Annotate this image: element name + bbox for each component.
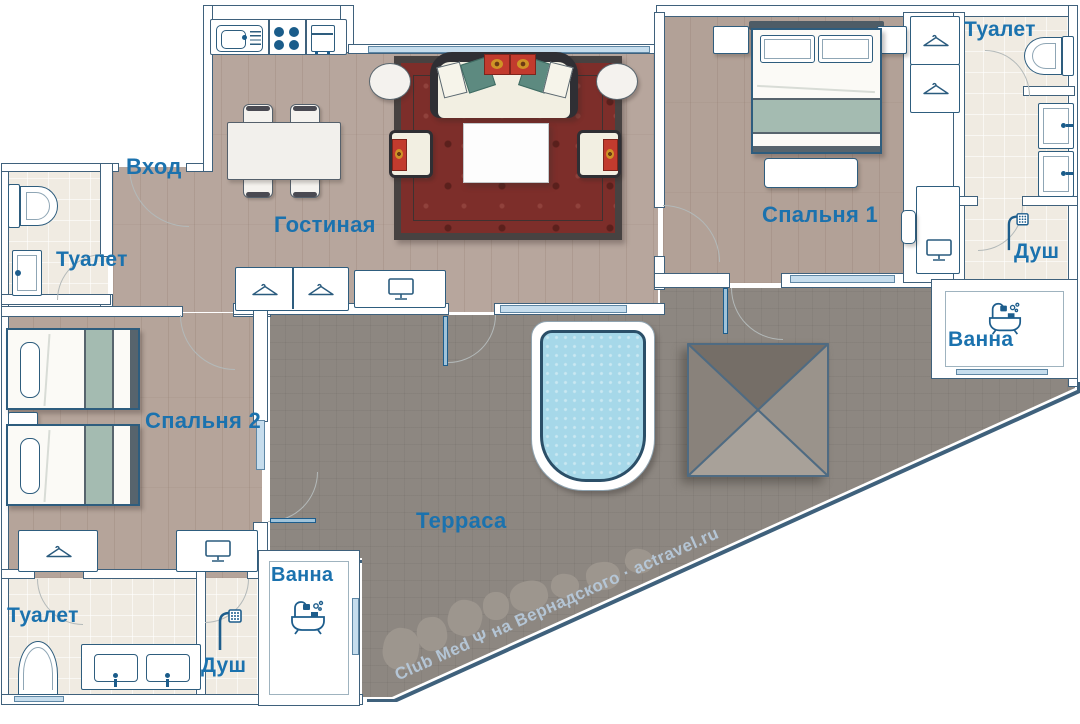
pillow bbox=[818, 35, 873, 63]
room-label-entrance: Вход bbox=[126, 154, 182, 180]
window bbox=[500, 305, 627, 313]
corridor-terrace-door-leaf bbox=[723, 288, 728, 334]
kitchen-divider bbox=[305, 19, 307, 55]
wardrobe-cell bbox=[910, 64, 960, 113]
room-label-bedroom2: Спальня 2 bbox=[145, 408, 261, 434]
sofa bbox=[430, 52, 578, 118]
hanger-icon bbox=[307, 281, 335, 298]
room-label-terrace: Терраса bbox=[416, 508, 507, 534]
window bbox=[790, 275, 895, 283]
armchair bbox=[389, 130, 433, 178]
sink-icon bbox=[1038, 151, 1074, 197]
sink-icon bbox=[94, 654, 138, 682]
window bbox=[352, 598, 359, 655]
hanger-icon bbox=[922, 32, 950, 49]
tv-icon bbox=[925, 239, 953, 263]
wardrobe-cell bbox=[910, 16, 960, 65]
stove-icon bbox=[289, 27, 299, 37]
side-table bbox=[369, 63, 411, 100]
tv-console bbox=[354, 270, 446, 308]
pyramid-skylight bbox=[684, 338, 832, 482]
bathtub-icon bbox=[288, 598, 328, 636]
bed-stripe bbox=[84, 426, 114, 504]
room-label-shower-bottom: Душ bbox=[201, 654, 246, 678]
room-label-living: Гостиная bbox=[274, 212, 376, 238]
wall bbox=[1022, 196, 1078, 206]
tv-icon bbox=[204, 540, 232, 564]
stove-icon bbox=[274, 40, 284, 50]
stove-icon bbox=[289, 40, 299, 50]
pool-water bbox=[540, 330, 646, 482]
twin-bed bbox=[6, 424, 140, 506]
desk bbox=[916, 186, 960, 274]
sink-icon bbox=[1038, 103, 1074, 149]
nightstand bbox=[713, 26, 749, 54]
bed-stripe bbox=[84, 330, 114, 408]
tv-icon bbox=[387, 278, 415, 302]
window bbox=[14, 696, 64, 702]
room-label-toilet-left: Туалет bbox=[56, 248, 128, 272]
room-label-toilet-bottom-left: Туалет bbox=[7, 604, 79, 628]
armchair bbox=[577, 130, 621, 178]
red-pillow bbox=[510, 54, 536, 75]
wall bbox=[100, 163, 113, 257]
desk bbox=[176, 530, 258, 572]
bolster-pillow bbox=[20, 342, 40, 398]
wall bbox=[1, 306, 183, 317]
kitchen-sink-icon bbox=[216, 25, 263, 52]
room-label-bedroom1: Спальня 1 bbox=[762, 202, 878, 228]
coffee-table bbox=[463, 123, 549, 183]
twin-bed bbox=[6, 328, 140, 410]
room-label-shower-right: Душ bbox=[1014, 240, 1059, 264]
hanger-icon bbox=[251, 281, 279, 298]
bedroom2-terrace-door-leaf bbox=[270, 518, 316, 523]
bolster-pillow bbox=[20, 438, 40, 494]
desk-chair bbox=[901, 210, 916, 244]
dining-table bbox=[227, 122, 341, 180]
double-bed bbox=[751, 28, 882, 154]
wall bbox=[204, 5, 352, 20]
room-label-bath-right: Ванна bbox=[948, 328, 1013, 352]
closet bbox=[235, 267, 349, 311]
pillow bbox=[760, 35, 815, 63]
wall bbox=[654, 12, 665, 208]
sink-counter bbox=[81, 644, 201, 690]
wall bbox=[656, 5, 1078, 17]
stove-icon bbox=[274, 27, 284, 37]
wall bbox=[654, 273, 730, 288]
toilet-icon bbox=[8, 182, 60, 230]
wardrobe bbox=[18, 530, 98, 572]
red-pillow bbox=[484, 54, 510, 75]
wall bbox=[1023, 86, 1075, 96]
wall bbox=[253, 306, 268, 422]
bench bbox=[764, 158, 858, 188]
shower-icon bbox=[214, 608, 246, 652]
hanger-icon bbox=[45, 543, 73, 560]
hanger-icon bbox=[922, 80, 950, 97]
living-terrace-door-leaf bbox=[443, 316, 448, 366]
side-table bbox=[596, 63, 638, 100]
room-label-toilet-top-right: Туалет bbox=[964, 18, 1036, 42]
kitchen-divider bbox=[268, 19, 270, 55]
window bbox=[956, 369, 1048, 375]
bed-stripe bbox=[753, 98, 880, 134]
sink-icon bbox=[12, 250, 42, 296]
fridge-icon bbox=[311, 25, 335, 52]
room-label-bath-bottom: Ванна bbox=[271, 564, 333, 587]
floor-plan: Вход Гостиная Спальня 1 Спальня 2 Террас… bbox=[0, 0, 1080, 724]
sink-icon bbox=[146, 654, 190, 682]
